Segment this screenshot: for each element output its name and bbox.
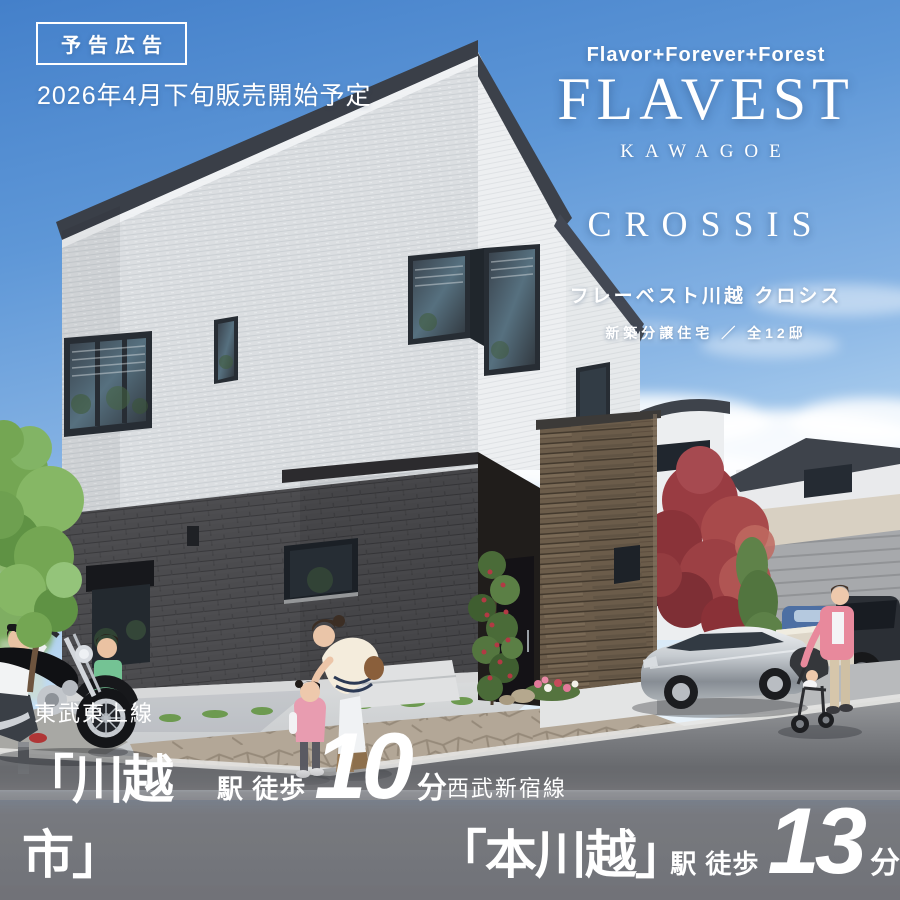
wood-wall-window	[614, 545, 640, 584]
upper-triple-window	[64, 331, 152, 437]
brand-series-name: CROSSIS	[540, 203, 872, 245]
property-ad-poster: 予告広告 2026年4月下旬販売開始予定 Flavor+Forever+Fore…	[0, 0, 900, 900]
brand-name: FLAVEST	[540, 69, 872, 129]
brand-area-name: KAWAGOE	[540, 141, 872, 163]
minutes-unit: 分	[417, 763, 447, 807]
first-floor-window-shuttered	[86, 560, 154, 668]
upper-narrow-window	[214, 316, 238, 384]
walk-minutes: 10	[314, 729, 409, 802]
walk-label: 駅 徒歩	[217, 769, 306, 806]
brand-logo: Flavor+Forever+Forest FLAVEST KAWAGOE CR…	[540, 44, 872, 343]
brand-name-japanese: フレーベスト川越 クロシス	[540, 281, 872, 308]
sale-schedule-text: 2026年4月下旬販売開始予定	[37, 76, 372, 112]
first-floor-window	[284, 538, 358, 604]
station-name: 「本川越」	[435, 813, 668, 888]
station-access-seibu: 西武新宿線 「本川越」 駅 徒歩 13 分	[447, 771, 900, 888]
pre-announcement-badge: 予告広告	[36, 22, 187, 65]
walk-label: 駅 徒歩	[670, 844, 759, 881]
property-type-text: 新築分譲住宅 ／ 全12邸	[540, 323, 872, 343]
wall-sconce-light	[187, 526, 199, 546]
walk-minutes: 13	[767, 804, 862, 877]
brand-tagline: Flavor+Forever+Forest	[540, 44, 872, 67]
station-name: 「川越市」	[22, 738, 215, 888]
station-access-tobu: 東武東上線 「川越市」 駅 徒歩 10 分	[34, 696, 447, 888]
station-access-bar: 東武東上線 「川越市」 駅 徒歩 10 分 西武新宿線 「本川越」 駅 徒歩 1…	[0, 766, 900, 900]
minutes-unit: 分	[870, 838, 900, 882]
